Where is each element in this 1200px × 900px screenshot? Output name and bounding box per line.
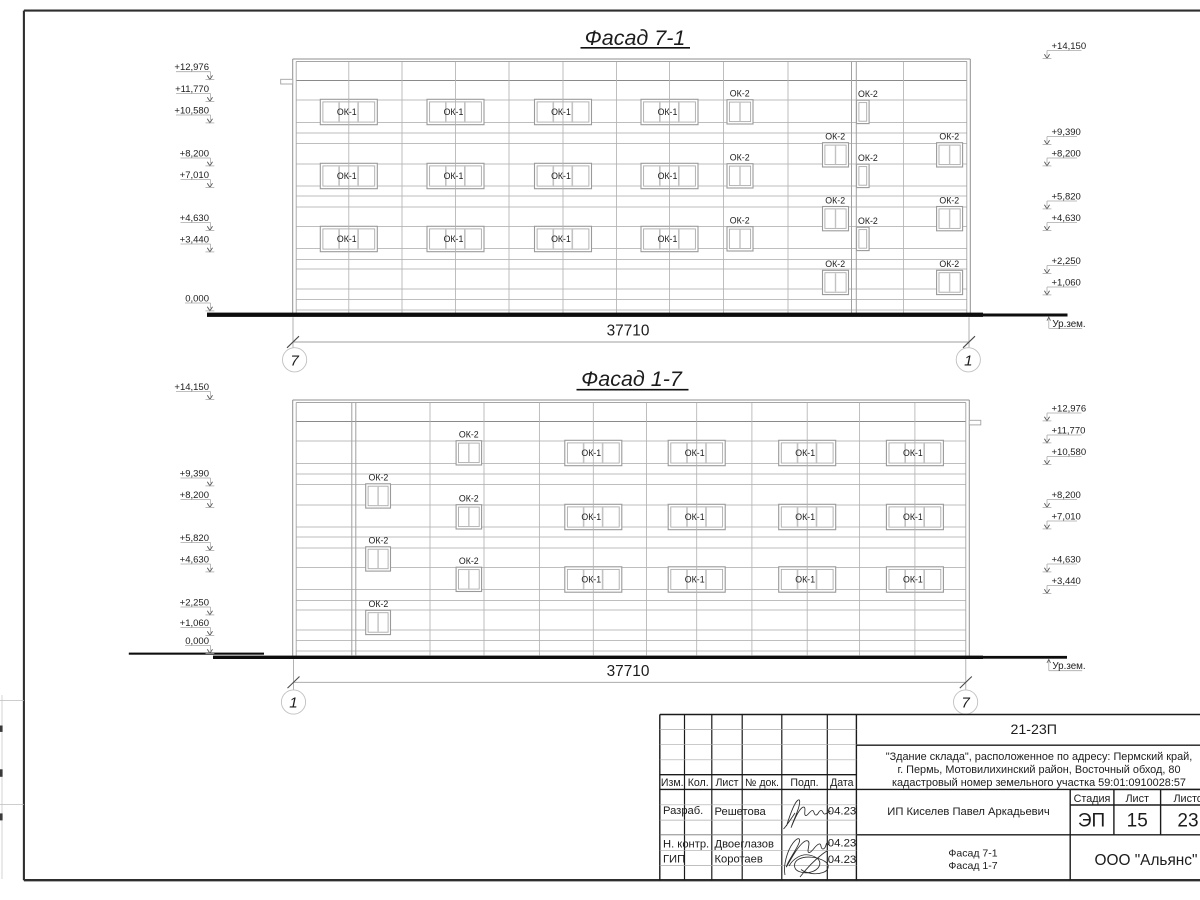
svg-text:1: 1	[289, 695, 297, 712]
svg-text:ОК-1: ОК-1	[581, 574, 601, 584]
svg-text:+10,580: +10,580	[174, 105, 209, 116]
svg-text:ОК-1: ОК-1	[903, 574, 923, 584]
svg-text:Дата: Дата	[830, 777, 854, 789]
svg-text:Лист: Лист	[1125, 793, 1149, 805]
svg-text:Решетова: Решетова	[715, 806, 767, 818]
svg-text:37710: 37710	[607, 322, 650, 339]
svg-text:ОК-1: ОК-1	[795, 512, 815, 522]
svg-text:ОК-1: ОК-1	[658, 234, 678, 244]
svg-text:ОК-2: ОК-2	[825, 132, 845, 142]
svg-text:ОК-1: ОК-1	[444, 107, 464, 117]
svg-text:+1,060: +1,060	[180, 618, 209, 629]
svg-text:ОК-1: ОК-1	[685, 574, 705, 584]
svg-text:Двоеглазов: Двоеглазов	[715, 838, 775, 850]
svg-text:+5,820: +5,820	[1052, 191, 1081, 202]
svg-text:ОК-1: ОК-1	[337, 107, 357, 117]
svg-text:+3,440: +3,440	[1052, 576, 1081, 587]
svg-text:Фасад 7-1: Фасад 7-1	[948, 848, 997, 860]
svg-text:Разраб.: Разраб.	[663, 805, 703, 817]
svg-text:04.23: 04.23	[828, 854, 857, 866]
svg-text:+2,250: +2,250	[180, 597, 209, 608]
svg-text:ОК-1: ОК-1	[795, 574, 815, 584]
svg-text:ОК-2: ОК-2	[858, 216, 878, 226]
svg-text:ОК-2: ОК-2	[730, 216, 750, 226]
svg-text:+3,440: +3,440	[180, 234, 209, 245]
svg-text:Кол.: Кол.	[688, 777, 709, 789]
svg-text:г. Пермь, Мотовилихинский райо: г. Пермь, Мотовилихинский район, Восточн…	[897, 764, 1180, 776]
svg-text:ЭП: ЭП	[1078, 811, 1105, 832]
svg-text:Коротаев: Коротаев	[715, 853, 763, 865]
svg-text:7: 7	[961, 695, 970, 712]
svg-text:+7,010: +7,010	[180, 170, 209, 181]
svg-text:ОК-2: ОК-2	[939, 195, 959, 205]
svg-text:№ док.: № док.	[745, 777, 779, 789]
svg-text:Фасад 1-7: Фасад 1-7	[948, 860, 997, 872]
svg-text:ОК-2: ОК-2	[369, 599, 389, 609]
svg-text:ОК-2: ОК-2	[730, 89, 750, 99]
svg-text:ОК-1: ОК-1	[903, 512, 923, 522]
svg-text:ИП Киселев Павел Аркадьевич: ИП Киселев Павел Аркадьевич	[887, 806, 1050, 818]
svg-text:37710: 37710	[607, 663, 650, 680]
svg-text:ОК-1: ОК-1	[551, 171, 571, 181]
svg-text:15: 15	[1127, 811, 1148, 832]
svg-text:ОК-1: ОК-1	[444, 171, 464, 181]
svg-text:1: 1	[964, 352, 972, 369]
svg-text:+11,770: +11,770	[1052, 425, 1086, 436]
svg-text:+4,630: +4,630	[180, 213, 209, 224]
svg-text:Подп.: Подп.	[790, 777, 818, 789]
svg-text:ОК-2: ОК-2	[369, 536, 389, 546]
svg-text:ОК-1: ОК-1	[551, 234, 571, 244]
svg-text:ОК-2: ОК-2	[939, 259, 959, 269]
svg-text:04.23: 04.23	[828, 805, 857, 817]
svg-text:ОК-1: ОК-1	[551, 107, 571, 117]
svg-text:+9,390: +9,390	[180, 468, 209, 479]
svg-text:+4,630: +4,630	[1052, 554, 1081, 565]
svg-text:+7,010: +7,010	[1052, 511, 1081, 522]
svg-text:ОК-1: ОК-1	[581, 512, 601, 522]
svg-text:Листов: Листов	[1173, 793, 1200, 805]
svg-text:ОК-2: ОК-2	[459, 556, 479, 566]
svg-text:ОК-2: ОК-2	[858, 153, 878, 163]
svg-text:ОК-1: ОК-1	[658, 171, 678, 181]
svg-text:ОК-2: ОК-2	[858, 89, 878, 99]
svg-text:ООО "Альянс": ООО "Альянс"	[1095, 852, 1198, 869]
svg-text:+9,390: +9,390	[1052, 127, 1081, 138]
svg-text:+8,200: +8,200	[1052, 490, 1081, 501]
svg-text:кадастровый номер земельного у: кадастровый номер земельного участка 59:…	[892, 777, 1186, 789]
svg-text:"Здание склада", расположенное: "Здание склада", расположенное по адресу…	[886, 751, 1193, 763]
svg-text:+4,630: +4,630	[180, 554, 209, 565]
svg-text:+10,580: +10,580	[1052, 447, 1087, 458]
svg-text:Н. контр.: Н. контр.	[663, 838, 709, 850]
svg-text:ОК-2: ОК-2	[730, 153, 750, 163]
svg-text:ОК-1: ОК-1	[337, 171, 357, 181]
svg-text:+14,150: +14,150	[174, 382, 209, 393]
svg-text:+2,250: +2,250	[1052, 256, 1081, 267]
svg-text:Ур.зем.: Ур.зем.	[1052, 319, 1085, 330]
svg-text:ОК-2: ОК-2	[459, 430, 479, 440]
svg-text:+8,200: +8,200	[180, 148, 209, 159]
svg-text:ОК-1: ОК-1	[903, 448, 923, 458]
svg-text:ОК-1: ОК-1	[685, 512, 705, 522]
svg-text:04.23: 04.23	[828, 838, 857, 850]
svg-text:ГИП: ГИП	[663, 853, 685, 865]
svg-text:ОК-1: ОК-1	[658, 107, 678, 117]
svg-text:ОК-2: ОК-2	[369, 473, 389, 483]
svg-text:Ур.зем.: Ур.зем.	[1052, 661, 1085, 672]
svg-text:ОК-1: ОК-1	[795, 448, 815, 458]
svg-text:ОК-1: ОК-1	[444, 234, 464, 244]
svg-text:+12,976: +12,976	[174, 62, 209, 73]
svg-text:7: 7	[290, 352, 299, 369]
svg-text:0,000: 0,000	[185, 293, 209, 304]
svg-text:0,000: 0,000	[185, 636, 209, 647]
svg-text:23: 23	[1177, 811, 1198, 832]
svg-text:Изм.: Изм.	[661, 777, 684, 789]
svg-text:Лист: Лист	[715, 777, 738, 789]
svg-text:Фасад 1-7: Фасад 1-7	[581, 367, 683, 391]
svg-text:+8,200: +8,200	[180, 490, 209, 501]
svg-text:Стадия: Стадия	[1074, 793, 1111, 805]
svg-text:ОК-2: ОК-2	[825, 195, 845, 205]
svg-text:ОК-2: ОК-2	[459, 494, 479, 504]
svg-text:+12,976: +12,976	[1052, 403, 1087, 414]
svg-text:+5,820: +5,820	[180, 533, 209, 544]
svg-text:ОК-1: ОК-1	[581, 448, 601, 458]
svg-text:+4,630: +4,630	[1052, 213, 1081, 224]
svg-text:+1,060: +1,060	[1052, 277, 1081, 288]
svg-text:ОК-2: ОК-2	[825, 259, 845, 269]
svg-text:21-23П: 21-23П	[1010, 722, 1056, 738]
svg-text:ОК-2: ОК-2	[939, 132, 959, 142]
svg-text:+11,770: +11,770	[175, 84, 209, 95]
svg-text:+8,200: +8,200	[1052, 148, 1081, 159]
svg-text:Фасад 7-1: Фасад 7-1	[585, 26, 686, 50]
svg-text:ОК-1: ОК-1	[685, 448, 705, 458]
svg-text:ОК-1: ОК-1	[337, 234, 357, 244]
svg-text:+14,150: +14,150	[1052, 41, 1087, 52]
